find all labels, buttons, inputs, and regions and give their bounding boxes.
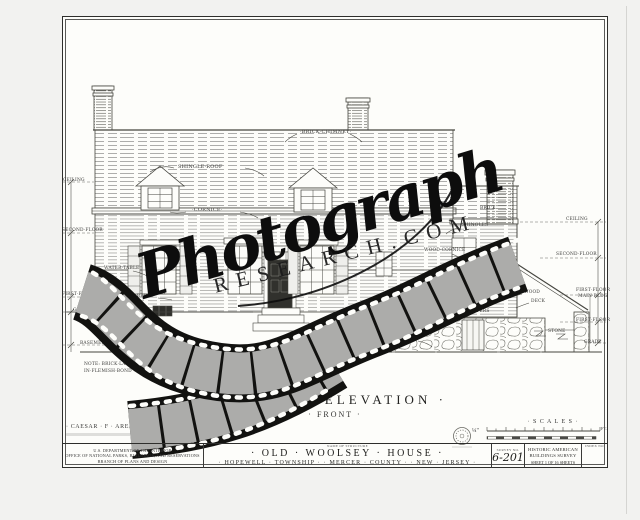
- title-block-habs-cell: HISTORIC AMERICAN BUILDINGS SURVEY SHEET…: [524, 444, 581, 468]
- habs-line2: BUILDINGS SURVEY: [529, 453, 576, 459]
- index-no-header: INDEX NO.: [585, 445, 605, 449]
- structure-name: · OLD · WOOLSEY · HOUSE ·: [251, 449, 444, 460]
- structure-location: · HOPEWELL · TOWNSHIP · · MERCER · COUNT…: [219, 460, 477, 467]
- habs-sheet-scan: SHINGLE·ROOF ·BRICK·CHIMNEY· ·CORNICE· C…: [0, 0, 640, 520]
- title-block: U.S. DEPARTMENT OF THE INTERIOR OFFICE O…: [62, 443, 608, 468]
- title-block-name-cell: NAME OF STRUCTURE · OLD · WOOLSEY · HOUS…: [203, 444, 491, 468]
- title-block-index-cell: INDEX NO.: [581, 444, 608, 468]
- sheet-info: SHEET 1 OF 16 SHEETS: [531, 460, 575, 465]
- survey-number: 6-201: [492, 452, 524, 463]
- title-block-survey-cell: SURVEY NO. 6-201: [491, 444, 524, 468]
- title-block-agency-cell: U.S. DEPARTMENT OF THE INTERIOR OFFICE O…: [62, 444, 203, 468]
- agency-line3: BRANCH OF PLANS AND DESIGN: [98, 459, 168, 464]
